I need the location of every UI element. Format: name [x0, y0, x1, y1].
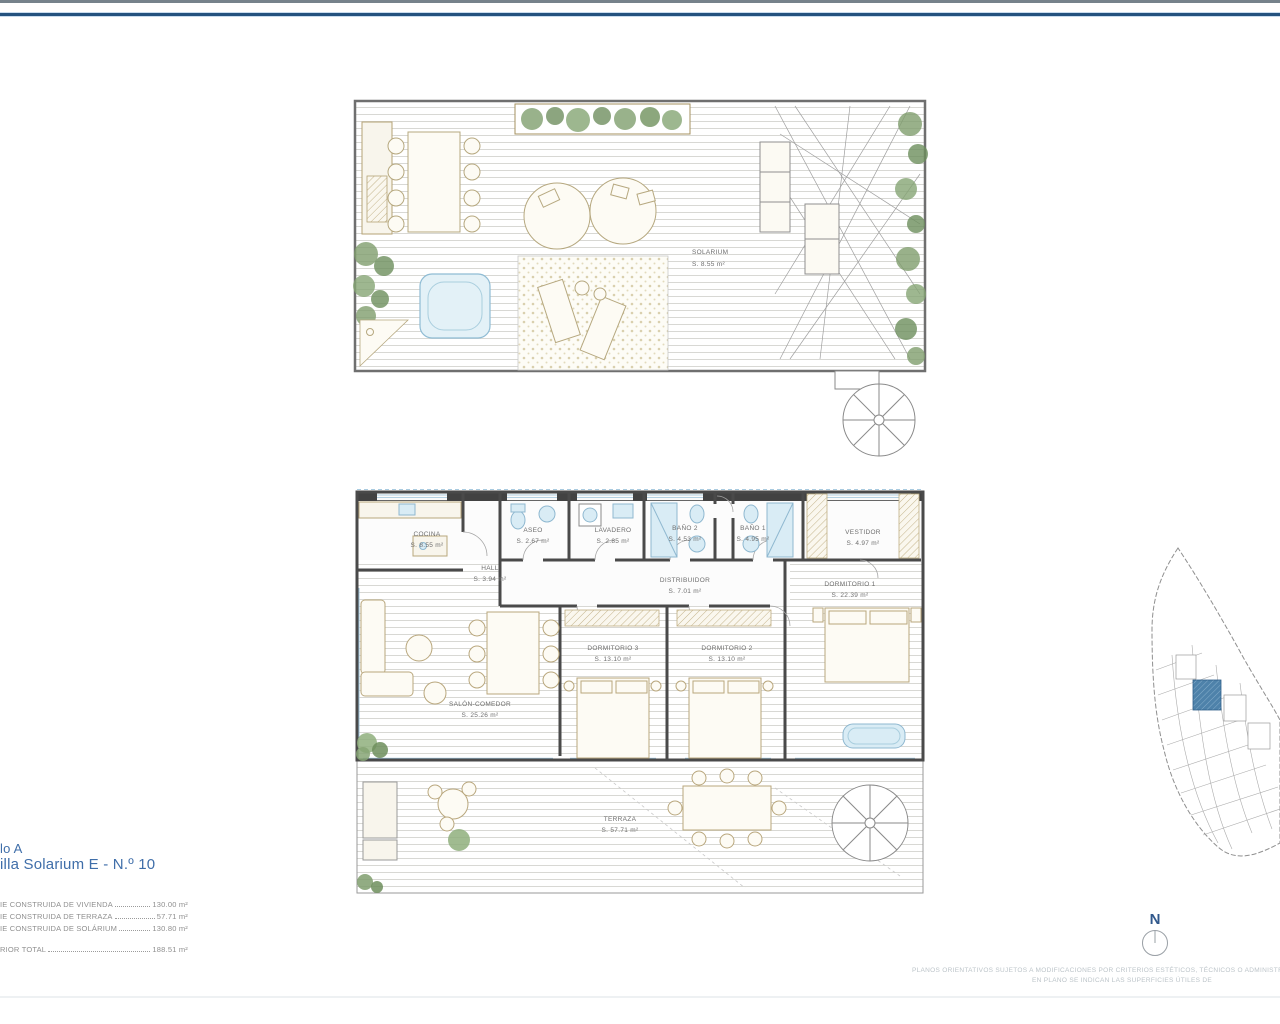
roof-jacuzzi: [420, 274, 490, 338]
surface-row-vivienda: IE CONSTRUIDA DE VIVIENDA 130.00 m²: [0, 897, 188, 909]
room-label-dormitorio1: DORMITORIO 1: [824, 581, 875, 588]
room-area-bano1: S. 4.95 m²: [737, 536, 771, 543]
room-label-salon: SALÓN-COMEDOR: [449, 699, 511, 708]
roof-bar-counter: [362, 122, 392, 234]
north-label: N: [1150, 911, 1161, 928]
room-area-distribuidor: S. 7.01 m²: [669, 588, 703, 595]
room-label-dormitorio3: DORMITORIO 3: [587, 645, 638, 652]
room-label-distribuidor: DISTRIBUIDOR: [660, 577, 710, 584]
room-label-bano2: BAÑO 2: [672, 523, 698, 532]
dotted-leader: [115, 918, 155, 919]
solarium-label: SOLARIUM: [692, 249, 728, 256]
surface-value: 57.71 m²: [157, 912, 188, 921]
solarium-area-label: S. 8.55 m²: [692, 261, 726, 268]
surface-total-label: RIOR TOTAL: [0, 945, 46, 954]
surface-label: IE CONSTRUIDA DE VIVIENDA: [0, 900, 113, 909]
top-blue-rule-highlight2: [0, 16, 1280, 17]
room-area-dormitorio1: S. 22.39 m²: [832, 592, 869, 599]
room-area-bano2: S. 4.53 m²: [669, 536, 703, 543]
site-location-plan: [1140, 533, 1280, 863]
top-gray-rule: [0, 0, 1280, 3]
roof-planter: [515, 104, 690, 134]
room-area-dormitorio3: S. 13.10 m²: [595, 656, 632, 663]
room-area-aseo: S. 2.67 m²: [517, 538, 551, 545]
surface-value: 130.80 m²: [152, 924, 188, 933]
room-area-vestidor: S. 4.97 m²: [847, 540, 881, 547]
room-label-hall: HALL: [481, 565, 499, 572]
room-label-dormitorio2: DORMITORIO 2: [701, 645, 752, 652]
disclaimer-line1: PLANOS ORIENTATIVOS SUJETOS A MODIFICACI…: [912, 967, 1280, 974]
room-area-terraza: S. 57.71 m²: [602, 827, 639, 834]
corridor-floor: [500, 560, 790, 606]
roof-lounger-area: [518, 256, 668, 370]
surface-label: IE CONSTRUIDA DE SOLÁRIUM: [0, 924, 117, 933]
room-area-lavadero: S. 2.85 m²: [597, 538, 631, 545]
room-area-dormitorio2: S. 13.10 m²: [709, 656, 746, 663]
dotted-leader: [115, 906, 150, 907]
north-compass: N: [1133, 906, 1177, 964]
terrace-spiral-stair: [832, 785, 908, 861]
surface-row-solarium: IE CONSTRUIDA DE SOLÁRIUM 130.80 m²: [0, 921, 188, 933]
dotted-leader: [48, 951, 150, 952]
room-area-hall: S. 3.94 m²: [474, 576, 508, 583]
surface-label: IE CONSTRUIDA DE TERRAZA: [0, 912, 113, 921]
room-label-bano1: BAÑO 1: [740, 523, 766, 532]
surface-areas-table: IE CONSTRUIDA DE VIVIENDA 130.00 m² IE C…: [0, 897, 188, 954]
solarium-floor-plan: SOLARIUM S. 8.55 m²: [350, 94, 934, 466]
villa-title: illa Solarium E - N.º 10: [0, 856, 155, 873]
site-highlighted-parcel: [1193, 680, 1221, 710]
room-label-cocina: COCINA: [413, 531, 440, 538]
surface-total-value: 188.51 m²: [152, 945, 188, 954]
surface-value: 130.00 m²: [152, 900, 188, 909]
room-label-terraza: TERRAZA: [604, 816, 637, 823]
room-area-salon: S. 25.26 m²: [462, 712, 499, 719]
room-label-vestidor: VESTIDOR: [845, 529, 881, 536]
bottom-rule: [0, 996, 1280, 998]
plan-sheet: SOLARIUM S. 8.55 m²: [0, 0, 1280, 1024]
dotted-leader: [119, 930, 150, 931]
model-title: lo A: [0, 841, 22, 856]
surface-row-total: RIOR TOTAL 188.51 m²: [0, 942, 188, 954]
room-label-lavadero: LAVADERO: [595, 527, 632, 534]
roof-spiral-stair: [835, 371, 915, 456]
main-floor-plan: COCINA S. 8.55 m² HALL S. 3.94 m² ASEO S…: [355, 488, 929, 898]
room-area-cocina: S. 8.55 m²: [411, 542, 445, 549]
surface-row-terraza: IE CONSTRUIDA DE TERRAZA 57.71 m²: [0, 909, 188, 921]
disclaimer-line2: EN PLANO SE INDICAN LAS SUPERFICIES ÚTIL…: [1032, 977, 1212, 984]
room-label-aseo: ASEO: [523, 527, 542, 534]
